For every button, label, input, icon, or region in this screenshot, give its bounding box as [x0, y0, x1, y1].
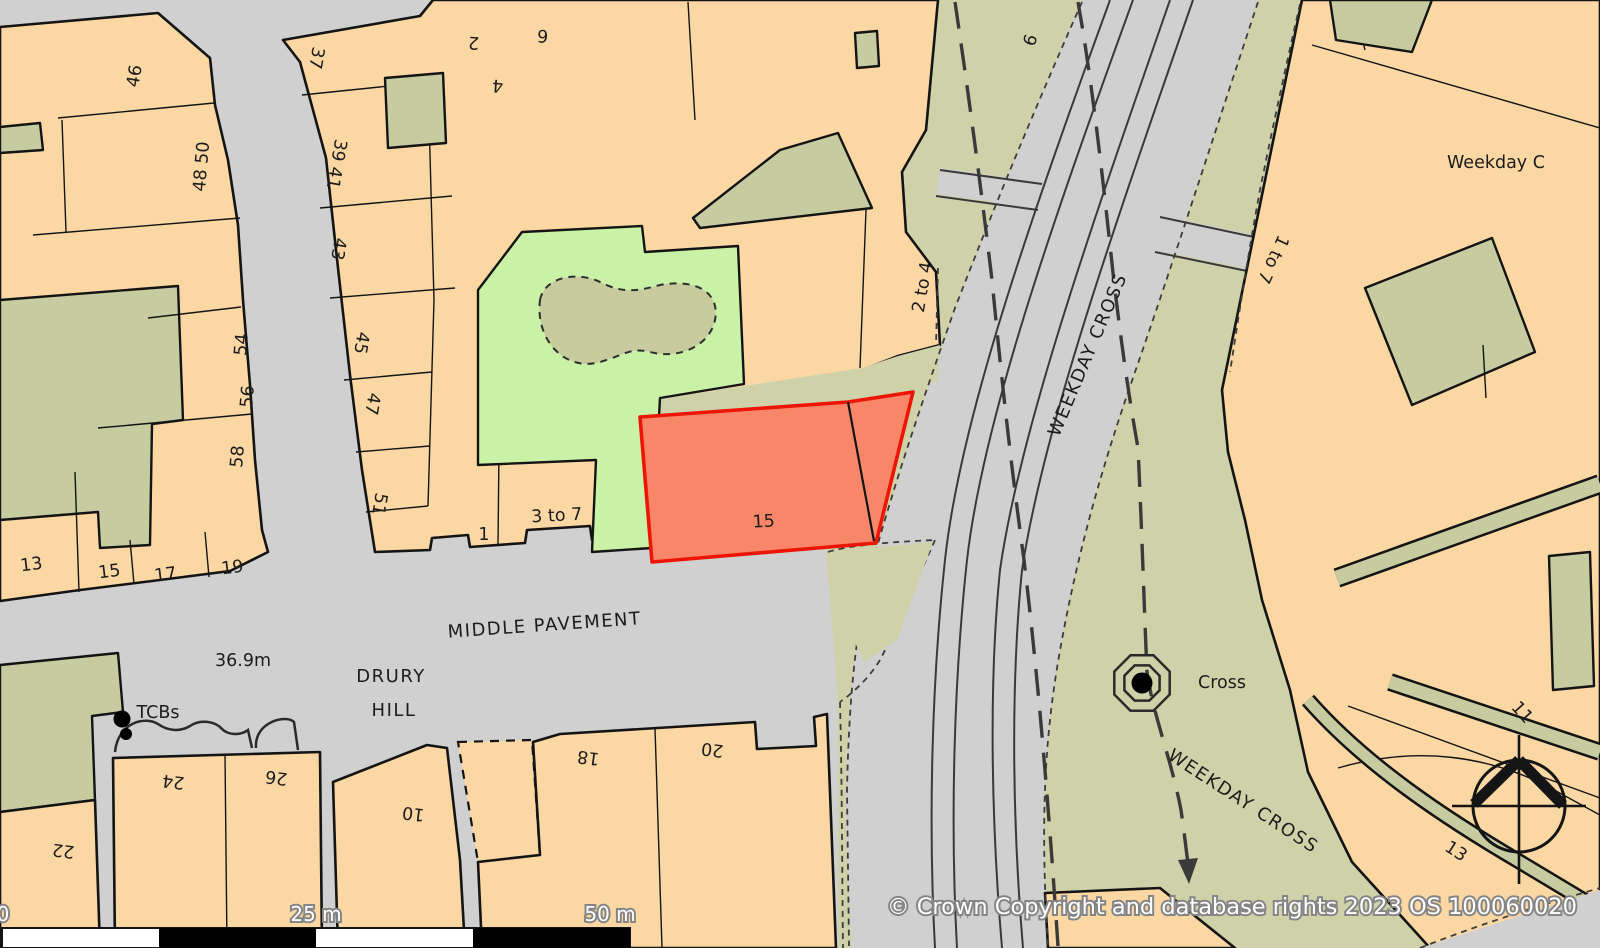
house-number: 24: [161, 770, 186, 793]
tcbs-label: TCBs: [135, 703, 179, 723]
parcel-number: 15: [752, 511, 775, 532]
street-name-hill: HILL: [372, 700, 417, 721]
house-number: 10: [401, 802, 426, 825]
map-canvas[interactable]: 46 48 50 54 56 58 13 15 17 19 22 24 26 3…: [0, 0, 1600, 948]
building-10: [333, 745, 465, 948]
house-number: 22: [51, 839, 76, 862]
house-number: 19: [220, 557, 245, 580]
house-number: 54: [231, 333, 253, 357]
house-number: 26: [264, 766, 289, 789]
highlighted-parcel[interactable]: [640, 392, 913, 562]
house-number: 56: [237, 385, 259, 409]
house-number: 15: [97, 561, 122, 584]
house-number: 58: [227, 445, 249, 469]
house-number: 13: [19, 554, 44, 577]
house-number: 1: [478, 525, 489, 545]
house-number: 20: [700, 738, 725, 761]
courtyard-square: [385, 73, 446, 148]
right-edge-khaki: [1549, 552, 1594, 690]
street-name-weekday-truncated: Weekday C: [1447, 153, 1545, 173]
house-number: 45: [349, 330, 373, 355]
house-number: 18: [576, 746, 601, 769]
house-number: 43: [326, 236, 350, 261]
house-number: 37: [304, 45, 328, 70]
house-number: 46: [123, 63, 147, 88]
house-number: 6: [536, 25, 549, 46]
house-number: 2: [467, 32, 480, 53]
house-number: 47: [360, 391, 384, 416]
west-courtyard-sliver: [0, 123, 43, 153]
scale-mid-label: 25 m: [290, 902, 341, 926]
house-number: 3 to 7: [531, 505, 583, 528]
scale-end-label: 50 m: [584, 902, 635, 926]
cross-label: Cross: [1198, 673, 1246, 693]
os-map-viewport[interactable]: 46 48 50 54 56 58 13 15 17 19 22 24 26 3…: [0, 0, 1600, 948]
house-number: 4: [491, 75, 504, 96]
street-name-drury: DRURY: [356, 666, 425, 687]
house-number: 51: [367, 491, 391, 516]
lightwell: [855, 31, 879, 68]
spot-height-label: 36.9m: [215, 651, 271, 671]
building-22: [0, 800, 100, 948]
scale-start-label: 0: [0, 902, 9, 926]
copyright-attribution: © Crown Copyright and database rights 20…: [887, 894, 1577, 920]
house-number: 17: [153, 564, 178, 587]
